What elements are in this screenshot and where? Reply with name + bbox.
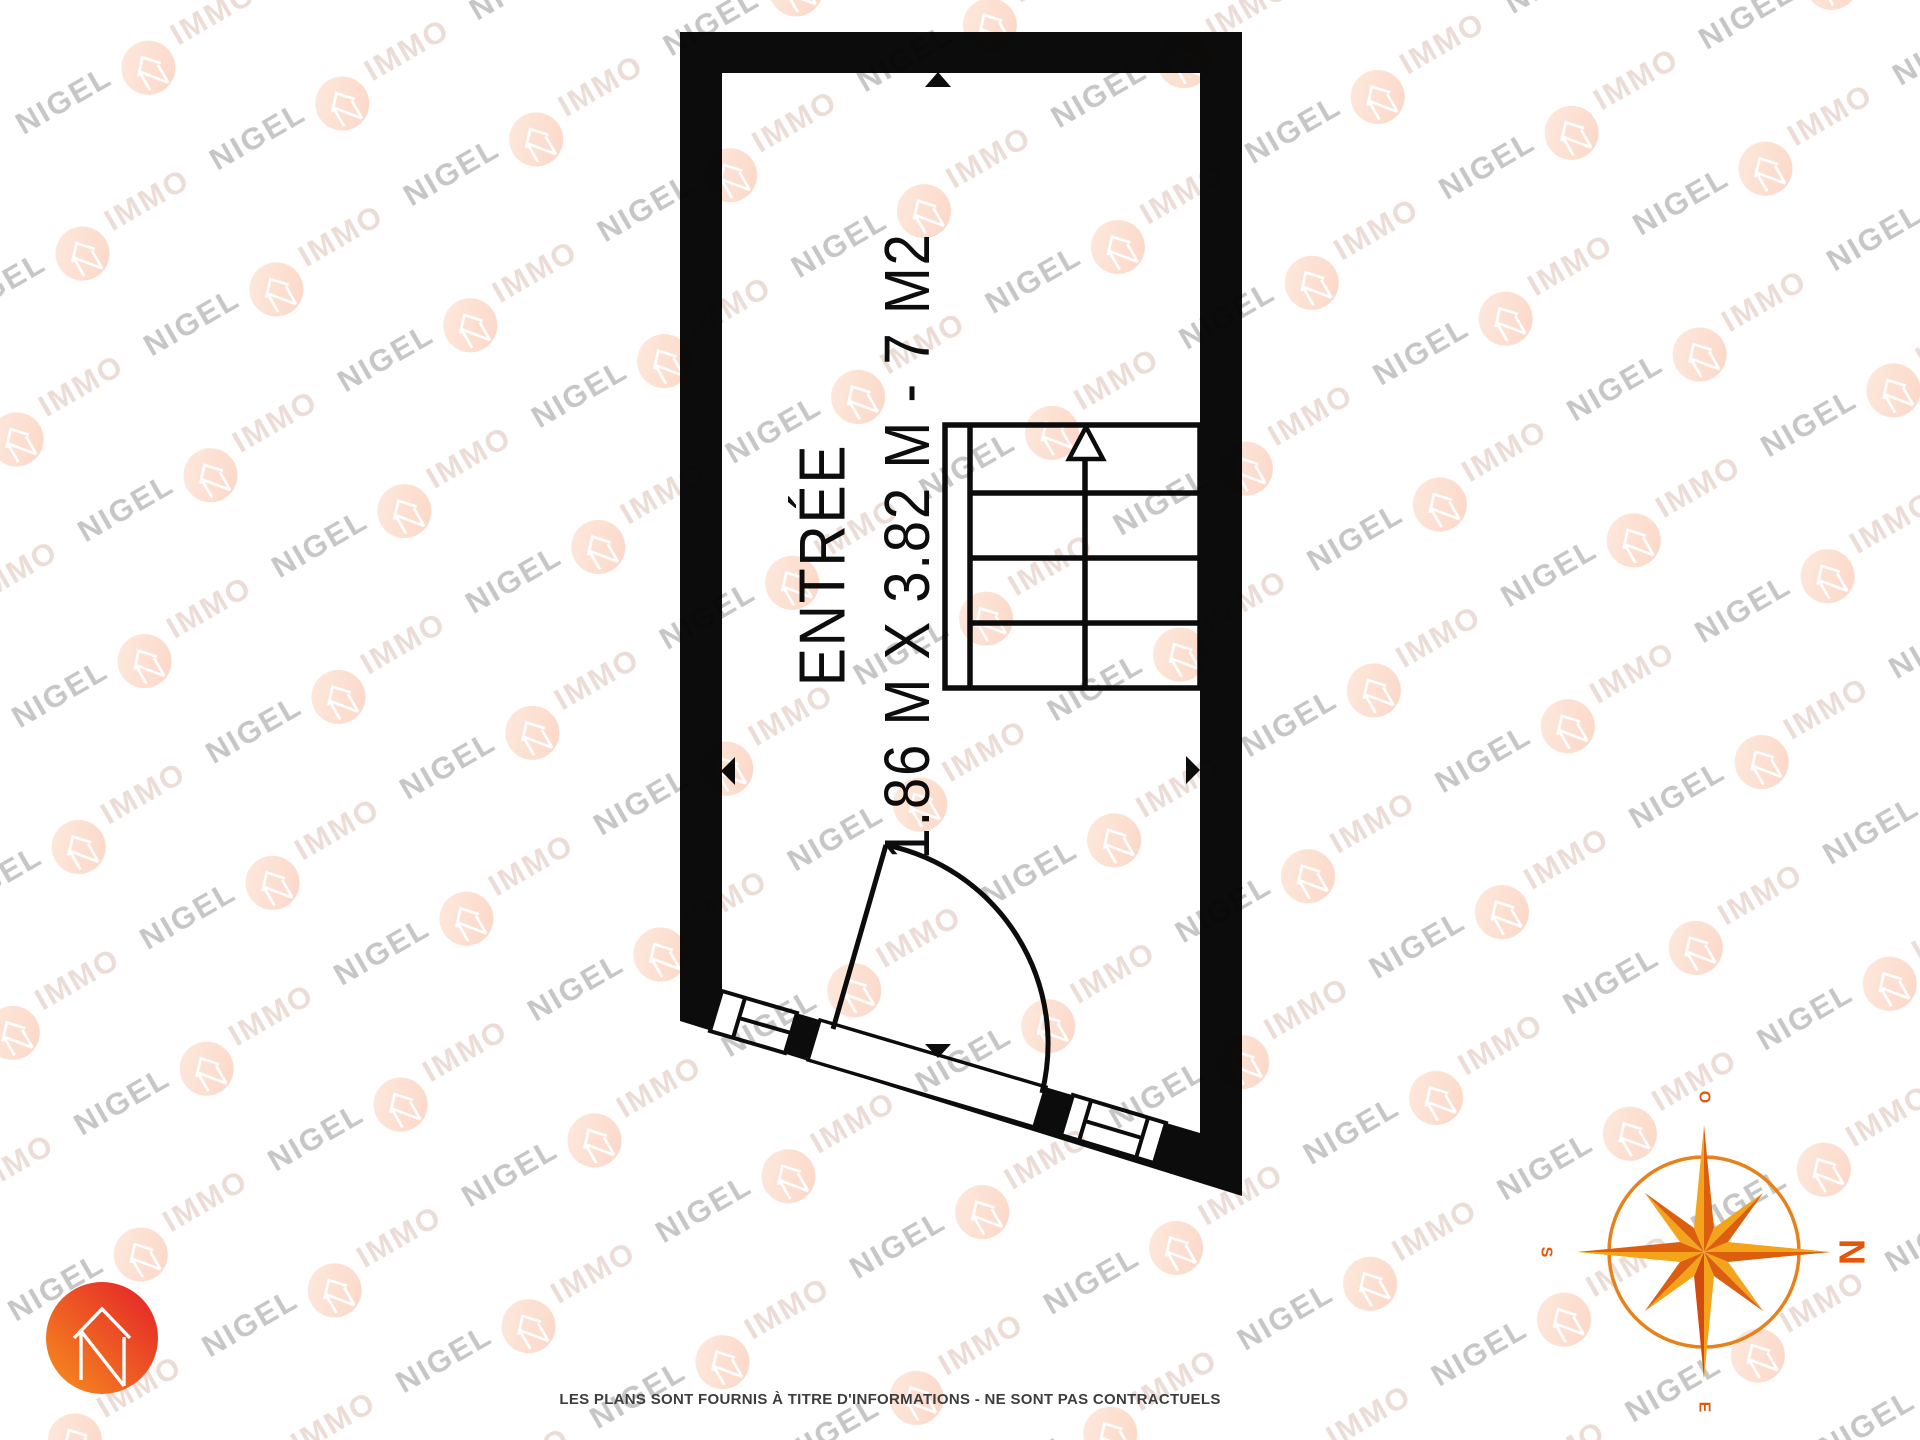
wall-marker-left-icon (721, 757, 735, 785)
door-opening (808, 1020, 1046, 1127)
room-name-label: ENTRÉE (785, 444, 860, 687)
compass-north-label: N (1832, 1239, 1873, 1265)
brand-logo-circle (46, 1282, 158, 1394)
compass-star-icon (1577, 1125, 1831, 1379)
compass-east-label: E (1696, 1402, 1713, 1413)
compass-rose: N E S O (1524, 1072, 1884, 1432)
window-right (1061, 1095, 1166, 1163)
wall-marker-right-icon (1186, 756, 1200, 784)
wall-marker-top-icon (925, 72, 951, 87)
floor-plan-page: ENTRÉE 1.86 M X 3.82 M - 7 M2 NIGELIMMON… (0, 0, 1920, 1440)
compass-west-label: O (1696, 1091, 1713, 1103)
compass-south-label: S (1538, 1247, 1555, 1258)
footer-disclaimer: LES PLANS SONT FOURNIS À TITRE D'INFORMA… (559, 1391, 1220, 1408)
door-leaf (833, 845, 886, 1029)
brand-logo (40, 1276, 164, 1400)
room-dimensions-label: 1.86 M X 3.82 M - 7 M2 (870, 232, 944, 859)
window-left (710, 991, 797, 1053)
staircase (945, 425, 1200, 688)
stair-direction-arrow-icon (1069, 427, 1103, 459)
